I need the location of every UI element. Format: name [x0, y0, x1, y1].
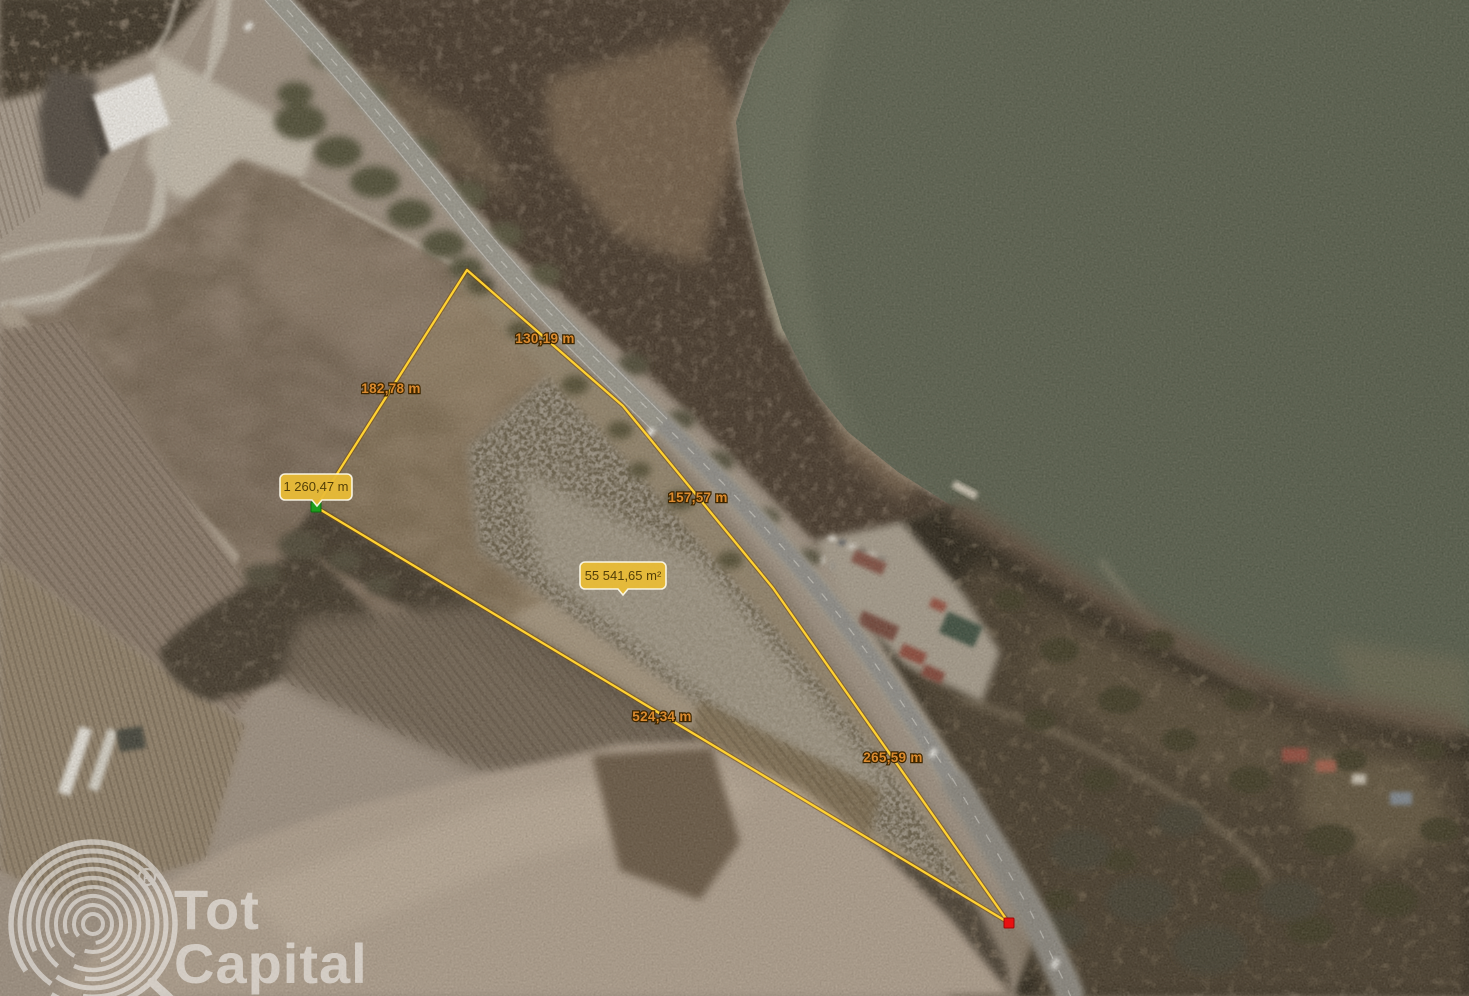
- svg-text:182,78 m: 182,78 m: [361, 381, 420, 396]
- svg-text:R: R: [143, 873, 151, 885]
- svg-text:524,34 m: 524,34 m: [632, 709, 691, 724]
- svg-text:Capital: Capital: [174, 932, 368, 995]
- svg-text:157,57 m: 157,57 m: [668, 490, 727, 505]
- svg-text:130,19 m: 130,19 m: [515, 331, 574, 346]
- svg-text:55 541,65 m²: 55 541,65 m²: [585, 568, 662, 583]
- svg-text:265,59 m: 265,59 m: [863, 750, 922, 765]
- svg-text:1 260,47 m: 1 260,47 m: [283, 479, 348, 494]
